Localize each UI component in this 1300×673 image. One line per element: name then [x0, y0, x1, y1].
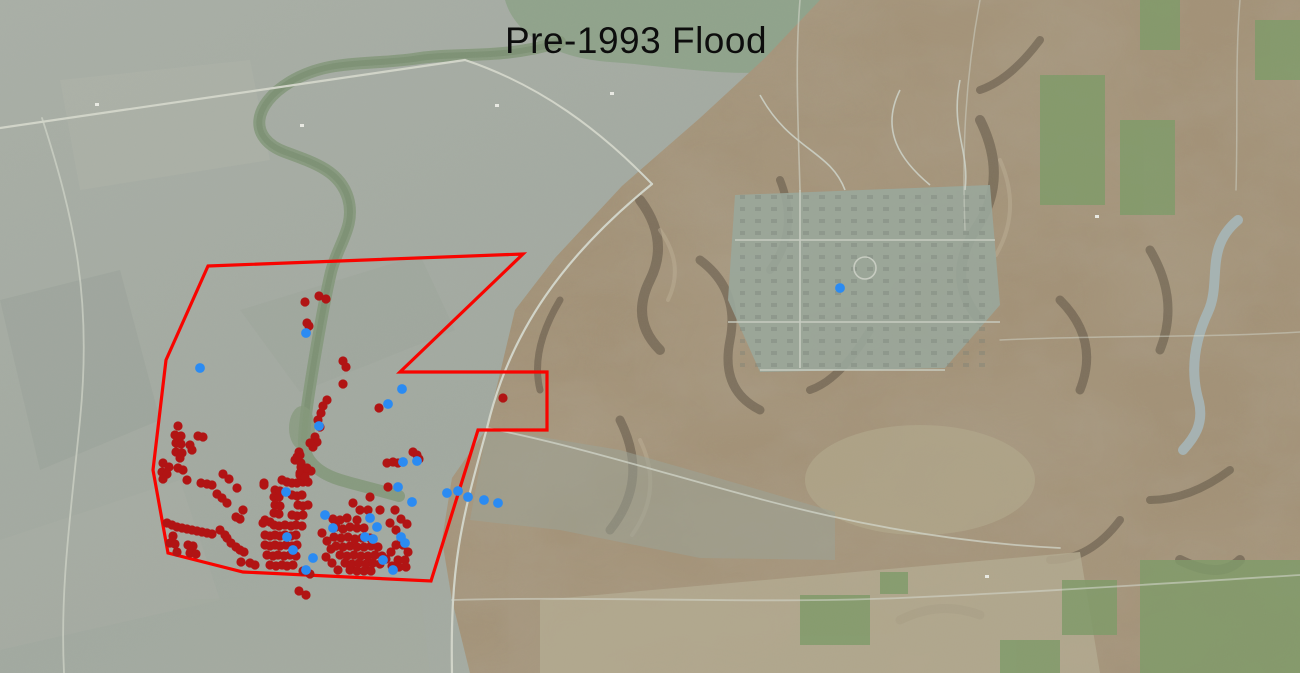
red-point [326, 544, 335, 553]
red-point [235, 514, 244, 523]
blue-point [388, 565, 398, 575]
red-point [303, 500, 312, 509]
red-point [292, 452, 301, 461]
red-point [342, 513, 351, 522]
blue-point [453, 486, 463, 496]
red-point [191, 549, 200, 558]
red-point [365, 492, 374, 501]
red-point [333, 565, 342, 574]
blue-point [314, 421, 324, 431]
blue-point [365, 513, 375, 523]
red-point [236, 557, 245, 566]
red-point [172, 547, 181, 556]
red-point [259, 480, 268, 489]
red-point [291, 530, 300, 539]
red-point [401, 562, 410, 571]
red-point [322, 536, 331, 545]
red-point [373, 542, 382, 551]
red-point [173, 421, 182, 430]
red-point [222, 498, 231, 507]
red-point [375, 505, 384, 514]
blue-point [397, 384, 407, 394]
blue-point [320, 510, 330, 520]
red-point [187, 445, 196, 454]
red-point [170, 539, 179, 548]
blue-point [328, 523, 338, 533]
map-title: Pre-1993 Flood [505, 20, 767, 62]
flood-data-overlay [0, 0, 1300, 673]
red-point [238, 505, 247, 514]
blue-point [372, 522, 382, 532]
red-point [305, 438, 314, 447]
blue-point [378, 555, 388, 565]
red-point [207, 529, 216, 538]
aerial-flood-map: Pre-1993 Flood [0, 0, 1300, 673]
red-point [300, 297, 309, 306]
blue-point [400, 538, 410, 548]
blue-point [442, 488, 452, 498]
red-point [302, 463, 311, 472]
blue-point [835, 283, 845, 293]
red-point [383, 482, 392, 491]
red-point [207, 480, 216, 489]
red-point [224, 474, 233, 483]
red-point [297, 521, 306, 530]
red-point [300, 472, 309, 481]
red-point [178, 465, 187, 474]
red-point [288, 560, 297, 569]
blue-point [368, 534, 378, 544]
red-point [402, 519, 411, 528]
blue-point [412, 456, 422, 466]
red-point [352, 515, 361, 524]
red-point [301, 590, 310, 599]
blue-point [282, 532, 292, 542]
red-point [385, 518, 394, 527]
red-point [275, 501, 284, 510]
red-point [239, 547, 248, 556]
blue-point [195, 363, 205, 373]
red-point [232, 483, 241, 492]
blue-point [281, 487, 291, 497]
blue-point [301, 328, 311, 338]
red-point [182, 475, 191, 484]
red-point [341, 362, 350, 371]
blue-point [463, 492, 473, 502]
blue-point [479, 495, 489, 505]
red-point [176, 439, 185, 448]
red-point [175, 453, 184, 462]
red-point [317, 528, 326, 537]
red-point [297, 490, 306, 499]
blue-point [407, 497, 417, 507]
red-point [363, 505, 372, 514]
blue-point [493, 498, 503, 508]
red-point [158, 474, 167, 483]
red-point [374, 403, 383, 412]
red-point [498, 393, 507, 402]
red-point [198, 432, 207, 441]
blue-point [301, 565, 311, 575]
red-point [250, 560, 259, 569]
red-point [338, 379, 347, 388]
red-point [366, 566, 375, 575]
red-point [403, 547, 412, 556]
blue-point [308, 553, 318, 563]
red-point [298, 510, 307, 519]
red-point [359, 523, 368, 532]
red-point [321, 294, 330, 303]
red-point [355, 505, 364, 514]
red-point [327, 558, 336, 567]
red-point [258, 518, 267, 527]
blue-point [383, 399, 393, 409]
blue-point [398, 457, 408, 467]
red-point [274, 509, 283, 518]
red-point [348, 498, 357, 507]
red-point [390, 505, 399, 514]
blue-point [393, 482, 403, 492]
blue-point [288, 545, 298, 555]
